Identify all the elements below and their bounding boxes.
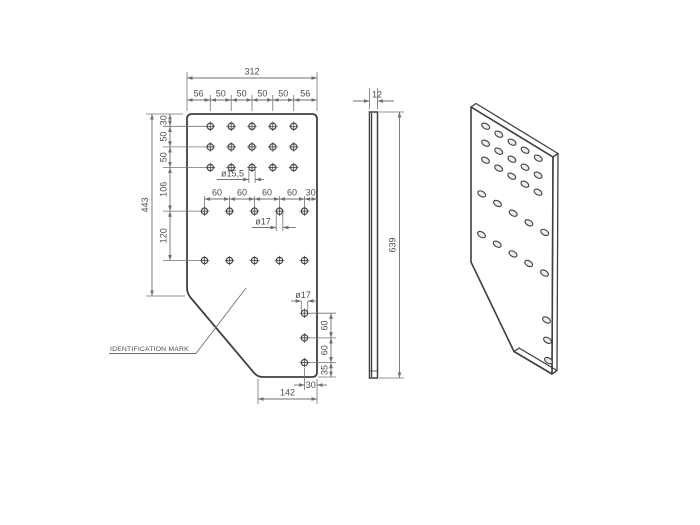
- dim-left-chain: 30 50 50 106 120: [159, 114, 207, 261]
- dim-text-top-chain-4: 50: [278, 89, 288, 99]
- dim-text-row4-chain-2: 60: [262, 188, 272, 198]
- callout-hole-17-bottom: ø17: [291, 290, 318, 312]
- dim-text-left-chain-4: 120: [159, 228, 169, 243]
- dim-right-chain: 60 60 35: [309, 313, 336, 377]
- dim-text-left-chain-0: 30: [159, 115, 169, 125]
- iso-top-face: [471, 104, 558, 158]
- dim-text-right-chain-1: 60: [320, 345, 330, 355]
- dim-text-row4-chain-1: 60: [237, 188, 247, 198]
- identification-mark-note: IDENTIFICATION MARK: [109, 288, 246, 354]
- dim-top-chain: 56 50 50 50 50 56: [187, 89, 317, 112]
- callout-text-17-bottom: ø17: [295, 290, 311, 300]
- dim-text-overall-height: 443: [140, 197, 150, 212]
- dim-text-row4-chain-3: 60: [287, 188, 297, 198]
- dim-row4-chain: 60 60 60 60 30: [205, 188, 318, 208]
- front-holes-grid: [200, 122, 310, 368]
- drawing-canvas: 312 56 50 50 50 50 56 443: [0, 0, 700, 525]
- dim-text-bottom-width: 142: [280, 388, 295, 398]
- iso-holes-grid: [476, 122, 553, 365]
- dim-text-edge-offset: 30: [306, 380, 316, 390]
- dim-text-top-chain-1: 50: [216, 89, 226, 99]
- dim-text-left-chain-1: 50: [159, 132, 169, 142]
- dim-text-top-chain-0: 56: [194, 89, 204, 99]
- iso-front-face: [471, 107, 553, 374]
- dim-text-right-chain-0: 60: [320, 320, 330, 330]
- dim-text-right-chain-2: 35: [320, 365, 330, 375]
- technical-drawing: 312 56 50 50 50 50 56 443: [0, 0, 700, 525]
- front-plate-body: [187, 114, 317, 377]
- dim-text-left-chain-2: 50: [159, 152, 169, 162]
- dim-text-overall-width: 312: [244, 67, 259, 77]
- identification-mark-leader: [196, 288, 246, 354]
- dim-text-top-chain-2: 50: [237, 89, 247, 99]
- dim-thickness: 12: [353, 88, 394, 109]
- callout-text-15-5: ø15,5: [221, 169, 244, 179]
- side-plate-body: [370, 112, 378, 378]
- dim-text-left-chain-3: 106: [159, 182, 169, 197]
- dim-side-height: 639: [379, 112, 404, 378]
- callout-text-17-mid: ø17: [255, 217, 271, 227]
- dim-text-side-height: 639: [388, 237, 398, 252]
- dim-text-row4-chain-4: 30: [306, 188, 316, 198]
- dim-text-row4-chain-0: 60: [212, 188, 222, 198]
- side-view: 12 639: [353, 88, 404, 378]
- callout-hole-17-mid: ø17: [252, 212, 296, 231]
- front-view: 312 56 50 50 50 50 56 443: [109, 67, 336, 405]
- dim-text-top-chain-3: 50: [257, 89, 267, 99]
- iso-view: [471, 104, 558, 375]
- callout-hole-15-5: ø15,5: [217, 168, 264, 183]
- dim-text-top-chain-5: 56: [300, 89, 310, 99]
- dim-text-thickness: 12: [372, 90, 382, 100]
- identification-mark-label: IDENTIFICATION MARK: [110, 346, 189, 353]
